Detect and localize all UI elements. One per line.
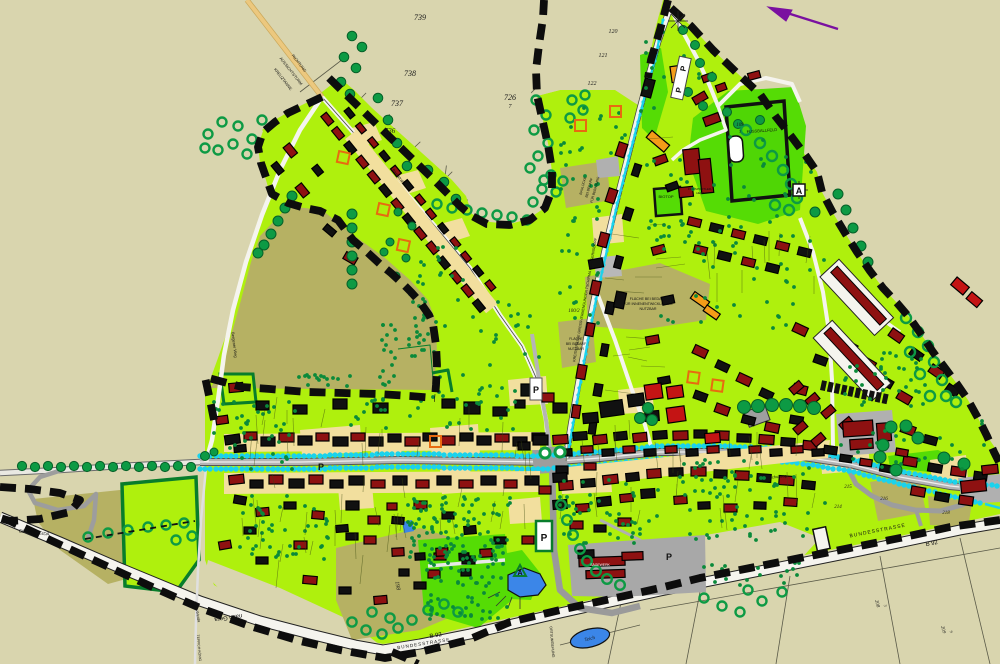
svg-text:P: P [541, 533, 548, 544]
svg-text:214: 214 [834, 505, 842, 510]
svg-text:121: 121 [599, 53, 608, 59]
svg-text:3: 3 [739, 129, 741, 134]
svg-text:122: 122 [588, 81, 597, 87]
svg-text:215: 215 [844, 485, 852, 490]
svg-text:218: 218 [942, 511, 950, 516]
svg-text:BIOTOP: BIOTOP [658, 194, 673, 199]
svg-text:736: 736 [385, 127, 396, 135]
svg-text:P: P [533, 385, 539, 395]
svg-text:FLÄCHE: FLÄCHE [569, 337, 583, 341]
svg-text:HEIM: HEIM [696, 191, 704, 195]
svg-text:726: 726 [504, 93, 516, 102]
svg-text:109: 109 [736, 123, 744, 128]
svg-text:FLÄCHE BEI BEDARF: FLÄCHE BEI BEDARF [630, 297, 667, 301]
svg-text:216: 216 [880, 497, 888, 502]
svg-text:P: P [318, 462, 324, 472]
svg-text:BEI BEDARF: BEI BEDARF [566, 342, 586, 346]
svg-text:737: 737 [391, 99, 404, 108]
svg-text:NUTZBAR: NUTZBAR [568, 347, 585, 351]
svg-text:FÜR INNENENTWICKLUNGS-: FÜR INNENENTWICKLUNGS- [623, 302, 674, 306]
svg-text:738: 738 [404, 69, 416, 78]
svg-text:739: 739 [414, 13, 426, 22]
svg-text:P: P [666, 552, 672, 562]
svg-text:A: A [796, 186, 803, 196]
svg-text:120: 120 [609, 29, 618, 35]
svg-text:NUTZBAR: NUTZBAR [640, 307, 657, 311]
svg-text:100/2: 100/2 [568, 309, 580, 314]
svg-text:SÄGEWERK: SÄGEWERK [590, 563, 610, 567]
svg-text:A: A [517, 570, 522, 577]
